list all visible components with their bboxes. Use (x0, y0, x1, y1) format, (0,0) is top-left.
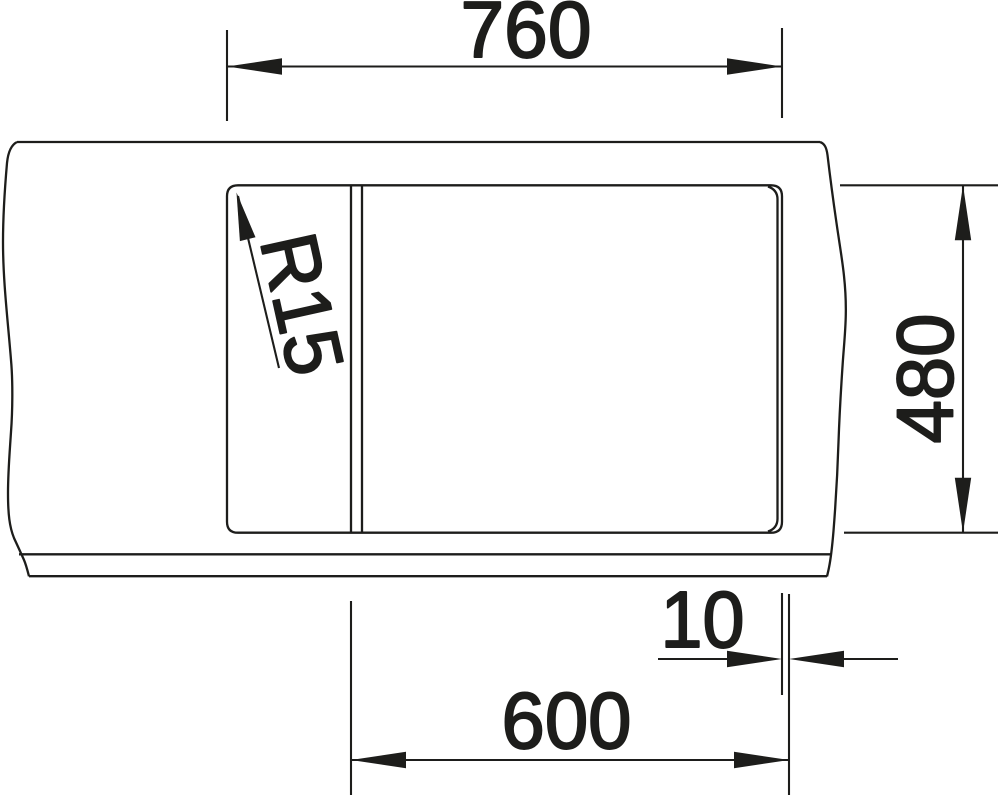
svg-text:760: 760 (461, 0, 592, 74)
svg-text:R15: R15 (243, 225, 361, 383)
svg-text:480: 480 (881, 314, 970, 444)
svg-text:10: 10 (661, 575, 745, 664)
svg-text:600: 600 (502, 676, 632, 765)
